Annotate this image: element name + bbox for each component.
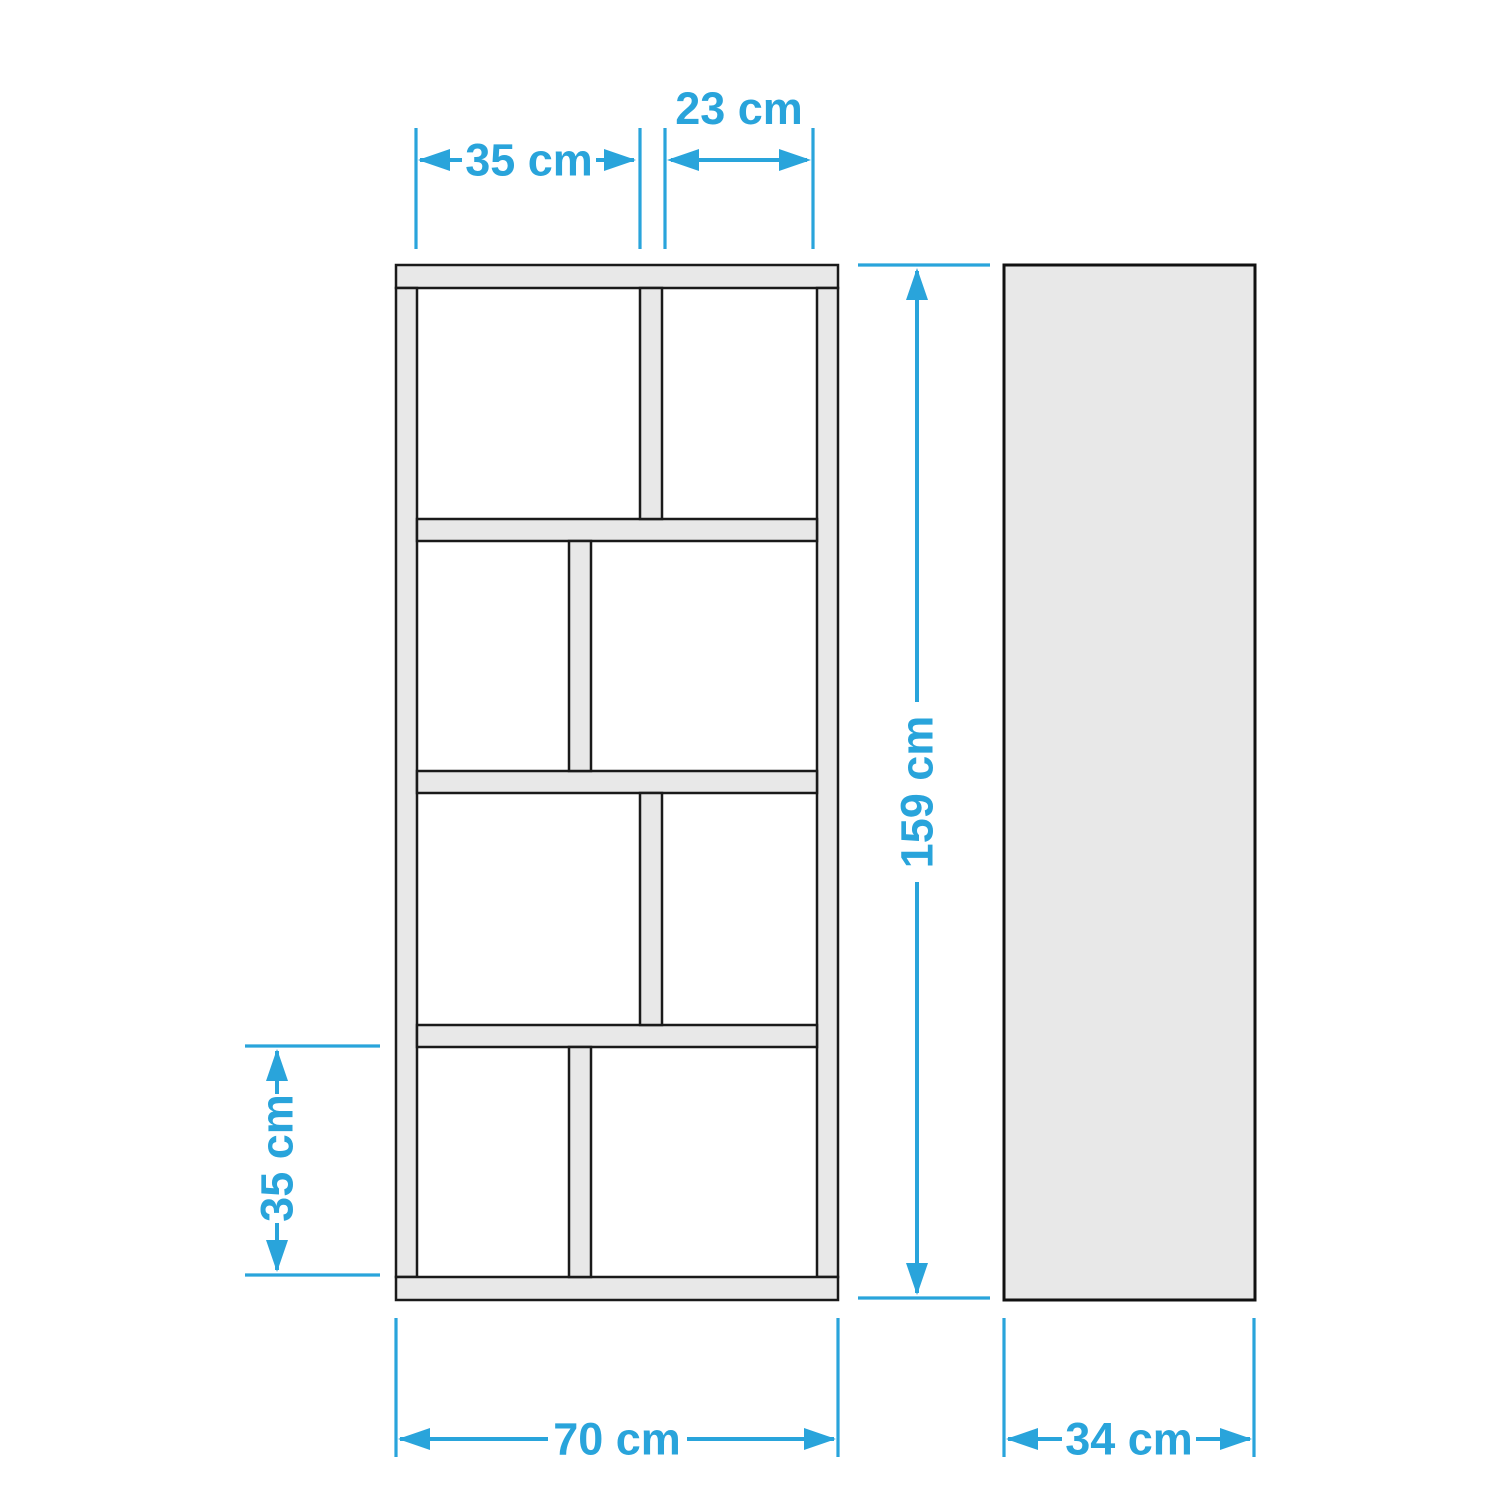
dim-label-total-width: 70 cm (553, 1414, 681, 1465)
front-view (396, 265, 838, 1300)
divider-row-3 (640, 793, 662, 1025)
shelf-1 (417, 519, 817, 541)
side-view (1004, 265, 1255, 1300)
dim-total-width: 70 cm (396, 1318, 838, 1465)
arrowhead-down-icon (906, 1263, 928, 1295)
divider-row-4 (569, 1047, 591, 1277)
dim-label-top-left: 35 cm (465, 135, 593, 186)
top-panel (396, 265, 838, 288)
arrowhead-left-icon (418, 149, 450, 171)
dimension-diagram: 35 cm 23 cm 159 cm (0, 0, 1500, 1500)
arrowhead-left-icon (667, 149, 699, 171)
dim-bottom-left-height: 35 cm (245, 1046, 380, 1275)
divider-row-1 (640, 288, 662, 519)
shelf-dimension-drawing: 35 cm 23 cm 159 cm (0, 0, 1500, 1500)
shelf-2 (417, 771, 817, 793)
arrowhead-right-icon (1220, 1428, 1252, 1450)
arrowhead-up-icon (906, 268, 928, 300)
dim-top-right-width: 23 cm (665, 83, 813, 249)
dim-label-height: 159 cm (892, 716, 943, 869)
arrowhead-left-icon (1006, 1428, 1038, 1450)
dim-label-bottom-left: 35 cm (252, 1094, 303, 1222)
dim-top-left-width: 35 cm (416, 128, 640, 249)
arrowhead-right-icon (779, 149, 811, 171)
arrowhead-right-icon (804, 1428, 836, 1450)
dim-total-height: 159 cm (858, 265, 990, 1298)
side-view-panel (1004, 265, 1255, 1300)
arrowhead-down-icon (266, 1240, 288, 1272)
arrowhead-left-icon (398, 1428, 430, 1450)
bottom-panel (396, 1277, 838, 1300)
left-side-panel (396, 288, 417, 1277)
dim-depth: 34 cm (1004, 1318, 1254, 1465)
divider-row-2 (569, 541, 591, 771)
shelf-3 (417, 1025, 817, 1047)
arrowhead-up-icon (266, 1049, 288, 1081)
dim-label-depth: 34 cm (1065, 1414, 1193, 1465)
right-side-panel (817, 288, 838, 1277)
arrowhead-right-icon (604, 149, 636, 171)
dim-label-top-right: 23 cm (675, 83, 803, 134)
